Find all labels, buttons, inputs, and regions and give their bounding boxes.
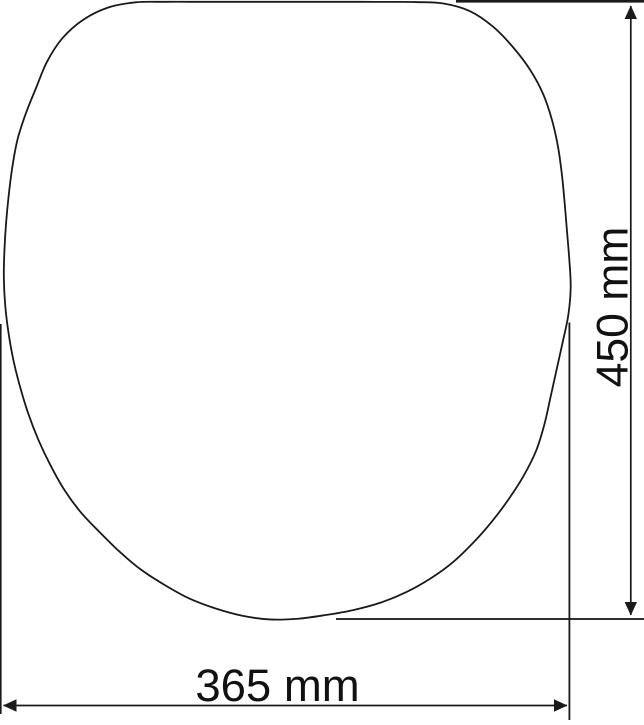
svg-text:365 mm: 365 mm [195, 660, 359, 711]
svg-text:450 mm: 450 mm [589, 227, 638, 388]
